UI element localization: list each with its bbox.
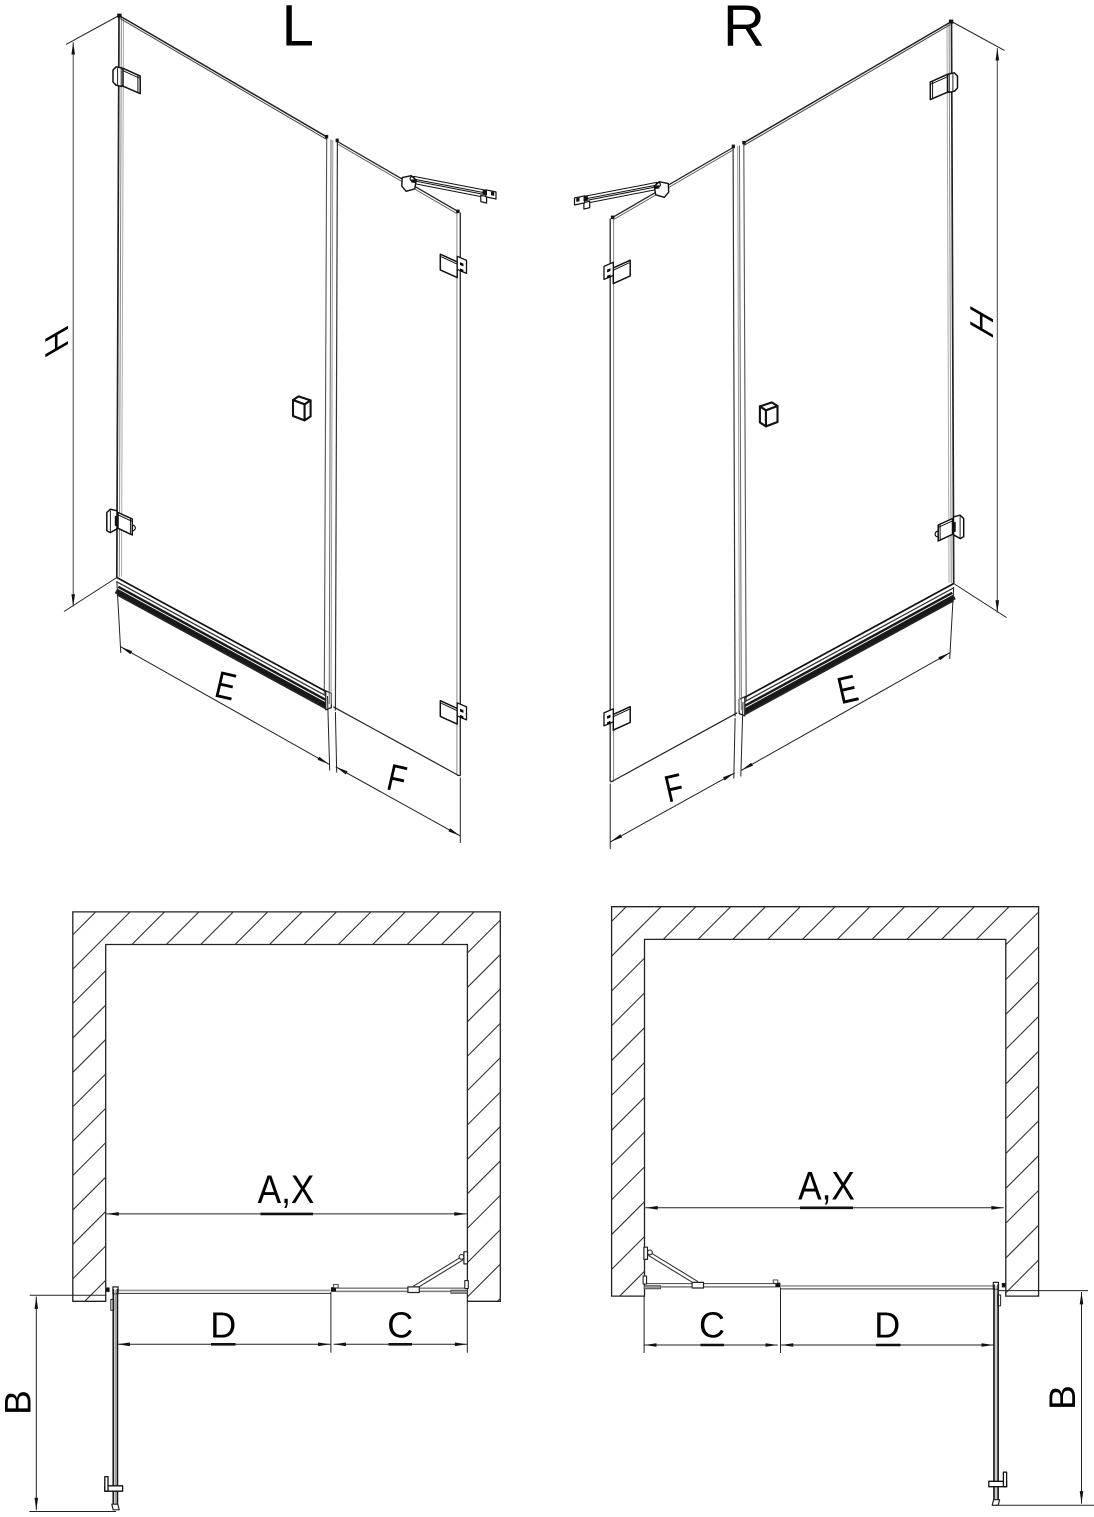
svg-text:B: B <box>1042 1385 1083 1410</box>
svg-text:R: R <box>723 0 765 58</box>
svg-text:D: D <box>874 1305 900 1346</box>
svg-text:C: C <box>387 1304 413 1345</box>
svg-text:A,X: A,X <box>798 1163 855 1208</box>
svg-text:D: D <box>210 1304 236 1345</box>
svg-text:L: L <box>282 0 314 58</box>
svg-text:B: B <box>0 1390 39 1415</box>
svg-text:C: C <box>699 1305 725 1346</box>
svg-text:A,X: A,X <box>258 1167 315 1212</box>
